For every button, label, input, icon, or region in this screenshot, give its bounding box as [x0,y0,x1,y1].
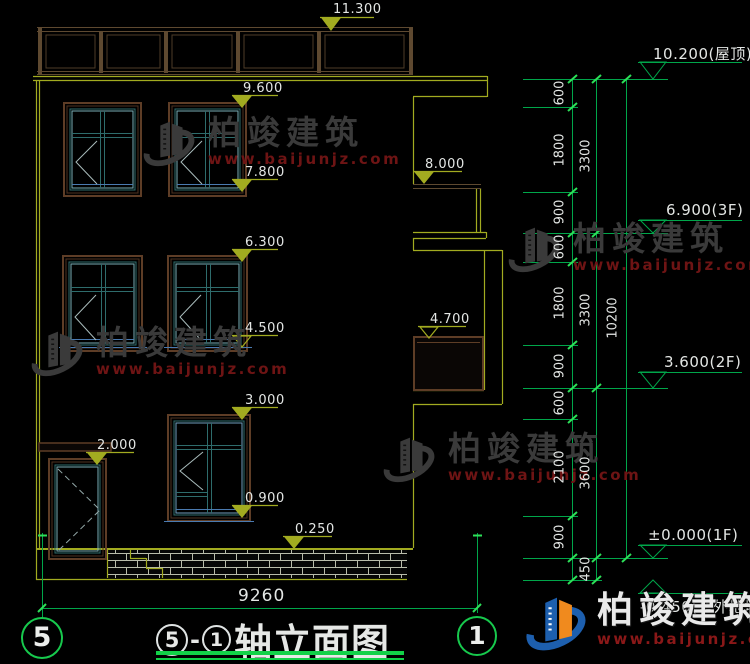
dim-3600: 3600 [579,456,594,489]
dim-10200: 10200 [606,297,621,338]
watermark-brand: 柏竣建筑 [573,222,750,255]
balcony-and-bay [413,185,483,391]
elev-6300: 6.300 [245,235,285,250]
elev-0250: 0.250 [295,522,335,537]
dim-600-c: 600 [553,391,568,416]
elev-8000: 8.000 [425,157,465,172]
dim-1800-b: 1800 [553,286,568,319]
window-3f-left [64,103,141,196]
axis-bubble-5: 5 [33,622,52,653]
dim-9260: 9260 [238,586,285,606]
company-logo-icon [525,585,589,655]
entry-door [49,459,106,559]
elev-4500: 4.500 [245,321,285,336]
title-text: 轴立面图 [234,612,390,664]
elev-0900: 0.900 [245,491,285,506]
dim-900-a: 900 [553,200,568,225]
elev-11300: 11.300 [333,2,382,17]
elev-1f: ±0.000(1F) [648,526,738,544]
watermark-mid-right: 柏竣建筑 www.baijunjz.com [505,218,750,276]
elev-4700: 4.700 [430,312,470,327]
dim-600-b: 600 [553,235,568,260]
watermark-logo-icon [380,428,440,486]
elev-2f: 3.600(2F) [664,353,741,371]
watermark-brand: 柏竣建筑 [448,432,641,465]
dim-900-c: 900 [553,525,568,550]
title-dash: - [190,626,200,654]
watermark-brand: 柏竣建筑 [208,116,401,149]
watermark-logo-icon [28,322,88,380]
watermark-logo-icon [140,112,200,170]
elev-roof: 10.200(屋顶) [653,43,750,64]
dim-450: 450 [579,557,594,582]
watermark-site: www.baijunjz.com [573,258,750,273]
drawing-title: 5 - 1 轴立面图 [156,612,390,664]
watermark-lower-mid: 柏竣建筑 www.baijunjz.com [380,428,641,486]
watermark-site: www.baijunjz.com [208,152,401,167]
company-site: www.baijunjz.com [597,632,750,647]
dim-600-a: 600 [553,81,568,106]
cad-elevation-drawing: 11.300 9.600 7.800 8.000 6.300 4.500 4.7… [0,0,750,664]
dim-3300-b: 3300 [579,293,594,326]
elev-2000: 2.000 [97,438,137,453]
title-underline-thick [156,651,404,655]
dim-1800-a: 1800 [553,133,568,166]
elev-7800: 7.800 [245,165,285,180]
watermark-site: www.baijunjz.com [96,362,289,377]
watermark-logo-colored: 柏竣建筑 www.baijunjz.com [525,585,750,655]
brick-pavement [107,550,407,578]
watermark-top: 柏竣建筑 www.baijunjz.com [140,112,401,170]
dim-900-b: 900 [553,354,568,379]
dim-2100: 2100 [553,450,568,483]
title-underline-thin [156,658,404,660]
dim-3300-a: 3300 [579,139,594,172]
company-brand: 柏竣建筑 [597,593,750,629]
title-axis-circle-1: 1 [202,625,231,654]
elev-3f: 6.900(3F) [666,201,743,219]
elev-3000: 3.000 [245,393,285,408]
roof-railing [37,28,413,75]
axis-bubble-1: 1 [468,621,485,650]
watermark-site: www.baijunjz.com [448,468,641,483]
elev-9600: 9.600 [243,81,283,96]
